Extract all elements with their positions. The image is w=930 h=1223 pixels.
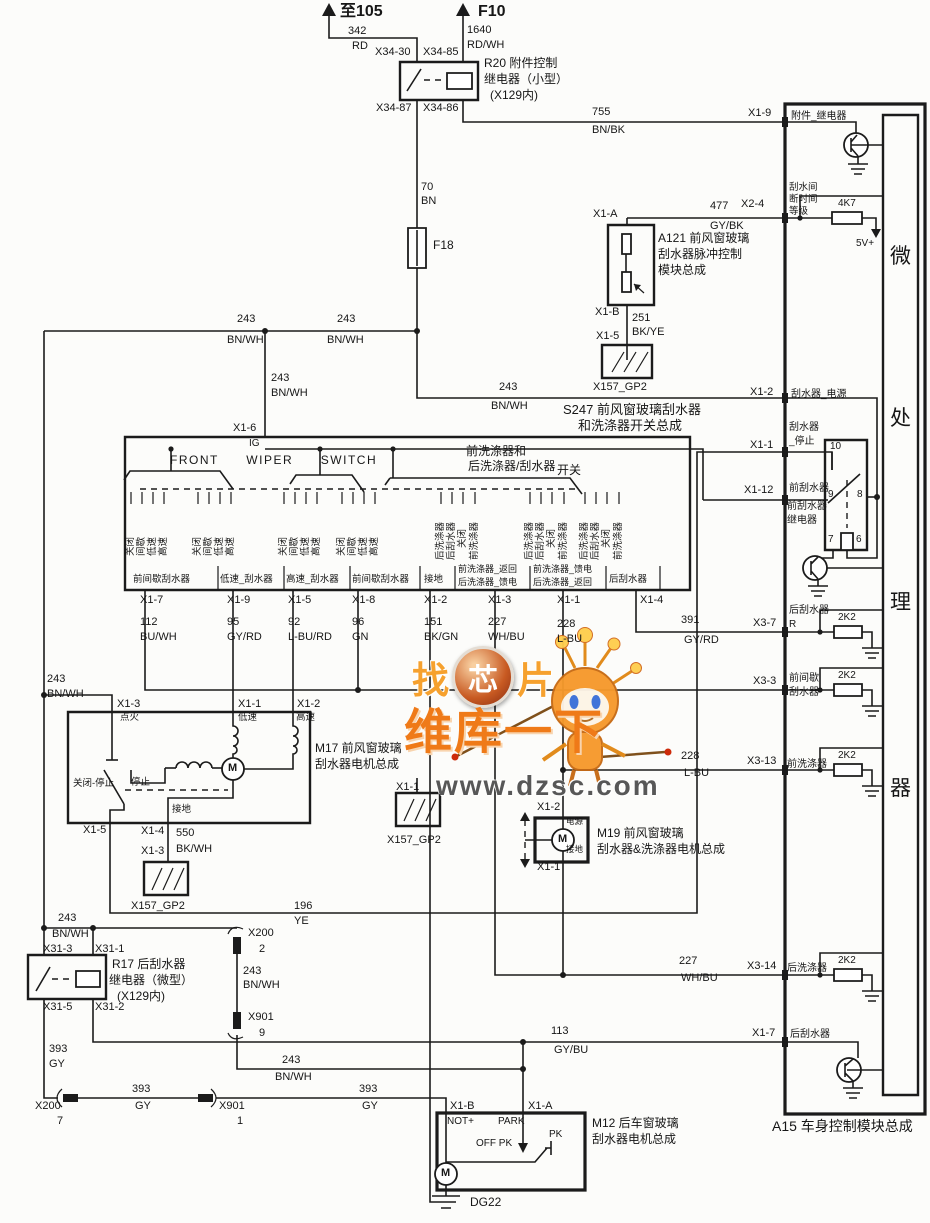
diagram-label: 2 [259, 943, 265, 955]
diagram-label: 模块总成 [658, 264, 706, 277]
diagram-label: 理 [890, 591, 911, 615]
diagram-label: 附件_继电器 [791, 111, 847, 122]
diagram-label: X1-2 [297, 698, 320, 710]
diagram-label: GY/BU [554, 1044, 588, 1056]
switch-contact-label: 间歇 [348, 537, 358, 556]
diagram-label: 243 [237, 313, 255, 325]
diagram-label: 后洗涤器/刮水器 [468, 460, 555, 473]
diagram-label: 前洗涤器 [787, 759, 827, 770]
diagram-label: BN/WH [271, 387, 308, 399]
diagram-label: X1-1 [537, 861, 560, 873]
diagram-label: 6 [856, 534, 862, 545]
diagram-label: 1640 [467, 24, 491, 36]
diagram-label: X1-B [595, 306, 619, 318]
diagram-label: X31-3 [43, 943, 72, 955]
diagram-label: 5V+ [856, 238, 874, 249]
switch-contact-label: 后洗涤器 [525, 522, 535, 560]
diagram-label: R17 后刮水器 [112, 958, 185, 971]
diagram-label: 96 [352, 616, 364, 628]
diagram-label: GY/RD [227, 631, 262, 643]
diagram-label: 后刮水器 [790, 1029, 830, 1040]
diagram-label: 前洗涤器_返回 [458, 564, 517, 574]
diagram-label: X3-7 [753, 617, 776, 629]
diagram-label: X157_GP2 [131, 900, 185, 912]
diagram-label: 4K7 [838, 198, 856, 209]
connector-x200-2 [228, 927, 243, 1012]
diagram-label: 393 [49, 1043, 67, 1055]
switch-contact-label: 间歇 [137, 537, 147, 556]
switch-contact-label: 后刮水器 [447, 522, 457, 560]
diagram-label: X1-2 [424, 594, 447, 606]
switch-contact-label: 后刮水器 [591, 522, 601, 560]
diagram-label: 继电器 [787, 515, 817, 526]
diagram-label: 95 [227, 616, 239, 628]
transistor-accessory-relay [785, 122, 883, 174]
diagram-label: M [441, 1167, 450, 1179]
diagram-label: 342 [348, 25, 366, 37]
diagram-label: X3-13 [747, 755, 776, 767]
switch-contact-label: 关闭 [337, 537, 347, 556]
diagram-label: 755 [592, 106, 610, 118]
diagram-label: X157_GP2 [387, 834, 441, 846]
switch-contact-label: 高速 [370, 537, 380, 556]
diagram-label: M17 前风窗玻璃 [315, 742, 402, 755]
watermark-url: www.dzsc.com [436, 770, 660, 802]
diagram-label: F18 [433, 239, 454, 252]
motor-m17 [44, 695, 310, 895]
sense-x3-14 [785, 953, 883, 1001]
diagram-label: 接地 [424, 575, 443, 586]
diagram-label: BN/WH [227, 334, 264, 346]
diagram-label: 前间歇刮水器 [133, 575, 190, 586]
switch-contact-label: 关闭 [279, 537, 289, 556]
diagram-label: 251 [632, 312, 650, 324]
diagram-label: _停止 [789, 436, 815, 447]
diagram-label: X1-5 [596, 330, 619, 342]
switch-contact-label: 关闭 [126, 537, 136, 556]
switch-contact-label: 关闭 [602, 529, 612, 548]
diagram-label: GY [49, 1058, 65, 1070]
diagram-label: X1-A [593, 208, 617, 220]
diagram-label: FRONT WIPER SWITCH [170, 454, 377, 467]
diagram-label: 刮水器 [789, 687, 819, 698]
diagram-label: 后刮水器 [789, 605, 829, 616]
diagram-label: X200 [35, 1100, 61, 1112]
diagram-label: YE [294, 915, 309, 927]
diagram-label: X31-5 [43, 1001, 72, 1013]
diagram-label: X31-2 [95, 1001, 124, 1013]
diagram-label: X1-7 [752, 1027, 775, 1039]
diagram-label: BK/YE [632, 326, 664, 338]
diagram-label: 后洗涤器_返回 [533, 577, 592, 587]
diagram-label: L-BU [557, 633, 582, 645]
diagram-label: DG22 [470, 1196, 501, 1209]
diagram-label: X1-3 [488, 594, 511, 606]
diagram-label: 196 [294, 900, 312, 912]
diagram-label: 9 [828, 489, 834, 500]
diagram-label: 刮水器脉冲控制 [658, 248, 742, 261]
diagram-label: 开关 [557, 464, 581, 477]
diagram-label: X31-1 [95, 943, 124, 955]
diagram-label: L-BU [684, 767, 709, 779]
diagram-label: 113 [551, 1025, 569, 1037]
diagram-label: 前刮水器 [789, 483, 829, 494]
diagram-label: A121 前风窗玻璃 [658, 232, 749, 245]
switch-contact-label: 前洗涤器 [470, 522, 480, 560]
transistor-rear-wiper [785, 1042, 883, 1098]
switch-contact-label: 间歇 [290, 537, 300, 556]
diagram-label: 2K2 [838, 750, 856, 761]
diagram-label: X157_GP2 [593, 381, 647, 393]
diagram-label: X34-85 [423, 46, 458, 58]
diagram-label: 228 [681, 750, 699, 762]
diagram-label: 继电器（微型） [109, 974, 193, 987]
diagram-label: 7 [828, 534, 834, 545]
diagram-label: 至105 [340, 3, 383, 21]
diagram-label: BN/WH [491, 400, 528, 412]
diagram-label: 电源 [566, 817, 583, 827]
diagram-label: X1-9 [227, 594, 250, 606]
diagram-label: BK/GN [424, 631, 458, 643]
diagram-label: X1-4 [640, 594, 663, 606]
diagram-label: 前洗涤器_馈电 [533, 564, 592, 574]
diagram-label: X1-2 [537, 801, 560, 813]
diagram-label: X1-1 [238, 698, 261, 710]
diagram-label: 刮水器 [789, 422, 819, 433]
diagram-label: 继电器（小型） [484, 73, 568, 86]
diagram-label: 刮水器&洗涤器电机总成 [597, 843, 725, 856]
diagram-label: 前洗涤器和 [466, 445, 526, 458]
diagram-label: BK/WH [176, 843, 212, 855]
diagram-label: 停止 [131, 778, 150, 789]
diagram-label: OFF PK [476, 1138, 512, 1149]
diagram-label: X1-6 [233, 422, 256, 434]
diagram-label: X34-86 [423, 102, 458, 114]
relay-r20 [400, 62, 478, 100]
diagram-label: 228 [557, 618, 575, 630]
sense-x3-7 [785, 610, 883, 658]
switch-contact-label: 关闭 [458, 529, 468, 548]
diagram-label: M12 后车窗玻璃 [592, 1117, 679, 1130]
diagram-label: 器 [890, 777, 911, 801]
diagram-label: BN/WH [327, 334, 364, 346]
diagram-label: X3-3 [753, 675, 776, 687]
switch-contact-label: 关闭 [547, 529, 557, 548]
switch-contact-label: 高速 [312, 537, 322, 556]
diagram-label: L-BU/RD [288, 631, 332, 643]
diagram-label: 刮水间 [789, 183, 818, 194]
switch-contact-label: 后洗涤器 [436, 522, 446, 560]
diagram-label: 处 [890, 407, 911, 431]
wiring-diagram: 找 芯 片 维库一下 www.dzsc.com 至105F10342RD1640… [0, 0, 930, 1223]
diagram-label: PARK [498, 1116, 525, 1127]
relay-r17 [28, 928, 785, 1098]
diagram-label: X1-9 [748, 107, 771, 119]
diagram-label: 243 [243, 965, 261, 977]
diagram-label: 92 [288, 616, 300, 628]
diagram-label: 点火 [120, 713, 139, 724]
diagram-label: 8 [857, 489, 863, 500]
diagram-label: M [228, 762, 237, 774]
diagram-label: X1-8 [352, 594, 375, 606]
diagram-label: M19 前风窗玻璃 [597, 827, 684, 840]
diagram-label: 低速 [238, 713, 257, 724]
connector-x200-7 [57, 1089, 198, 1107]
diagram-label: X1-2 [750, 386, 773, 398]
diagram-label: 前间歇 [789, 673, 819, 684]
diagram-label: 后刮水器 [609, 575, 647, 586]
diagram-label: GY/RD [684, 634, 719, 646]
diagram-label: 接地 [172, 805, 191, 816]
diagram-label: X1-5 [83, 824, 106, 836]
sense-x3-13 [785, 748, 883, 796]
diagram-label: 7 [57, 1115, 63, 1127]
motor-m12 [432, 1113, 585, 1208]
diagram-label: X1-3 [117, 698, 140, 710]
diagram-label: 刮水器电机总成 [315, 758, 399, 771]
diagram-label: 2K2 [838, 612, 856, 623]
switch-contact-label: 低速 [359, 537, 369, 556]
diagram-label: X34-87 [376, 102, 411, 114]
diagram-label: GY [362, 1100, 378, 1112]
diagram-label: 477 [710, 200, 728, 212]
diagram-label: X1-1 [396, 781, 419, 793]
diagram-label: X901 [219, 1100, 245, 1112]
diagram-label: X2-4 [741, 198, 764, 210]
switch-contact-label: 间歇 [204, 537, 214, 556]
diagram-label: 等级 [789, 207, 808, 218]
diagram-label: 关闭-停止 [73, 779, 114, 790]
diagram-label: 2K2 [838, 670, 856, 681]
switch-contact-label: 前洗涤器 [559, 522, 569, 560]
diagram-label: 微 [890, 245, 911, 269]
switch-contact-label: 关闭 [193, 537, 203, 556]
diagram-label: BN/WH [275, 1071, 312, 1083]
diagram-label: X200 [248, 927, 274, 939]
diagram-label: 243 [271, 372, 289, 384]
diagram-label: RD/WH [467, 39, 504, 51]
diagram-label: X34-30 [375, 46, 410, 58]
diagram-label: X901 [248, 1011, 274, 1023]
switch-contact-label: 低速 [301, 537, 311, 556]
diagram-label: X1-12 [744, 484, 773, 496]
diagram-label: X1-1 [750, 439, 773, 451]
diagram-label: 刮水器_电源 [791, 389, 847, 400]
diagram-label: (X129内) [490, 89, 538, 102]
front-wiper-relay [818, 440, 877, 558]
switch-contact-label: 后洗涤器 [580, 522, 590, 560]
diagram-label: 2K2 [838, 955, 856, 966]
diagram-label: R [789, 619, 796, 630]
diagram-label: 断时间 [789, 195, 818, 206]
diagram-label: 243 [337, 313, 355, 325]
diagram-label: 刮水器电机总成 [592, 1133, 676, 1146]
diagram-label: 393 [359, 1083, 377, 1095]
diagram-label: WH/BU [681, 972, 718, 984]
diagram-label: RD [352, 40, 368, 52]
switch-contact-label: 前洗涤器 [614, 522, 624, 560]
diagram-label: 前刮水器 [787, 501, 827, 512]
diagram-label: X1-A [528, 1100, 552, 1112]
diagram-label: F10 [478, 3, 506, 21]
wire-755 [463, 100, 785, 122]
diagram-label: BN/WH [52, 928, 89, 940]
diagram-label: 低速_刮水器 [220, 575, 273, 586]
diagram-label: 后洗涤器 [787, 963, 827, 974]
diagram-label: X1-4 [141, 825, 164, 837]
diagram-label: 高速 [296, 713, 315, 724]
diagram-label: BU/WH [140, 631, 177, 643]
diagram-label: BN/BK [592, 124, 625, 136]
diagram-label: M [558, 833, 567, 845]
diagram-label: PK [549, 1129, 562, 1140]
diagram-label: X1-1 [557, 594, 580, 606]
diagram-label: R20 附件控制 [484, 57, 557, 70]
diagram-label: GN [352, 631, 369, 643]
switch-contact-label: 高速 [159, 537, 169, 556]
diagram-label: 243 [499, 381, 517, 393]
diagram-label: GY [135, 1100, 151, 1112]
diagram-label: NOT+ [447, 1116, 474, 1127]
diagram-label: 和洗涤器开关总成 [578, 419, 682, 434]
diagram-label: A15 车身控制模块总成 [772, 1119, 913, 1135]
diagram-label: BN [421, 195, 436, 207]
diagram-label: 后洗涤器_馈电 [458, 577, 517, 587]
diagram-label: 393 [132, 1083, 150, 1095]
diagram-label: 前间歇刮水器 [352, 575, 409, 586]
diagram-label: X1-5 [288, 594, 311, 606]
diagram-label: X1-7 [140, 594, 163, 606]
diagram-label: 550 [176, 827, 194, 839]
diagram-label: X3-14 [747, 960, 776, 972]
diagram-label: 70 [421, 181, 433, 193]
diagram-label: 391 [681, 614, 699, 626]
diagram-label: IG [249, 438, 260, 449]
diagram-label: 高速_刮水器 [286, 575, 339, 586]
diagram-label: S247 前风窗玻璃刮水器 [563, 403, 701, 418]
diagram-label: 112 [140, 616, 158, 628]
diagram-label: 1 [237, 1115, 243, 1127]
diagram-label: X1-B [450, 1100, 474, 1112]
diagram-label: WH/BU [488, 631, 525, 643]
junction-dots [41, 215, 880, 1072]
switch-contact-label: 低速 [215, 537, 225, 556]
diagram-label: 227 [488, 616, 506, 628]
diagram-label: 227 [679, 955, 697, 967]
diagram-label: 接地 [566, 845, 583, 855]
diagram-label: BN/WH [243, 979, 280, 991]
diagram-label: 243 [282, 1054, 300, 1066]
diagram-label: 243 [58, 912, 76, 924]
diagram-label: 151 [424, 616, 442, 628]
diagram-label: BN/WH [47, 688, 84, 700]
diagram-label: 9 [259, 1027, 265, 1039]
switch-contact-label: 低速 [148, 537, 158, 556]
diagram-label: 10 [830, 441, 841, 452]
diagram-label: 243 [47, 673, 65, 685]
switch-contact-label: 后刮水器 [536, 522, 546, 560]
switch-contact-label: 高速 [226, 537, 236, 556]
watermark-line2: 维库一下 [404, 692, 604, 762]
transistor-front-wiper [803, 556, 883, 596]
diagram-label: X1-3 [141, 845, 164, 857]
